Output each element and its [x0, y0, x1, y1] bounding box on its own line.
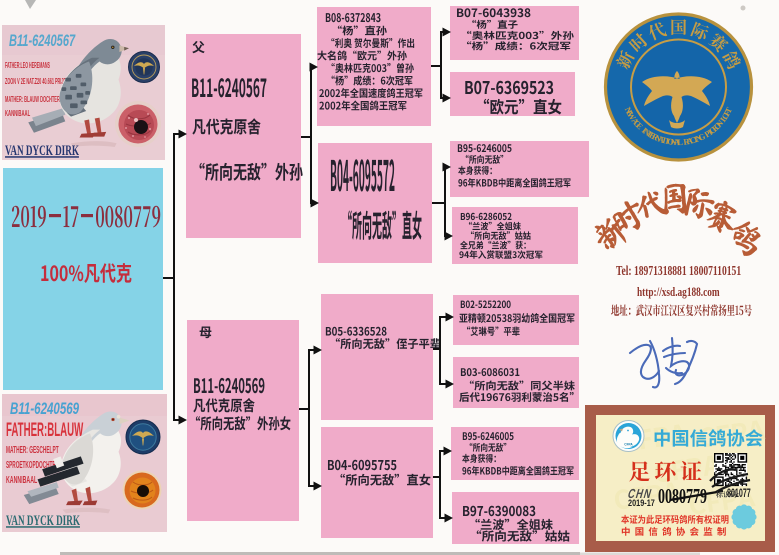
svg-text:KANNIBAAL: KANNIBAAL	[5, 110, 30, 119]
svg-text:ZOON V 2E NAT.Z20 40.661 PRIJS: ZOON V 2E NAT.Z20 40.661 PRIJS	[5, 78, 66, 87]
svg-text:2019-17: 2019-17	[628, 497, 655, 508]
svg-text:http://xsd.ag188.com: http://xsd.ag188.com	[637, 286, 720, 300]
svg-text:Tel: 18971318881 18007110151: Tel: 18971318881 18007110151	[616, 263, 741, 278]
svg-text:MATHER: BLAUW DOCHTER: MATHER: BLAUW DOCHTER	[5, 96, 60, 105]
svg-text:801077: 801077	[727, 487, 751, 500]
svg-text:KANNIBAAL: KANNIBAAL	[6, 473, 37, 486]
svg-text:B11-6240567: B11-6240567	[9, 32, 76, 51]
svg-text:B11-6240569: B11-6240569	[10, 400, 80, 419]
svg-text:VAN DYCK DIRK: VAN DYCK DIRK	[6, 512, 80, 529]
svg-text:MATHER: GESCHELPT: MATHER: GESCHELPT	[6, 444, 59, 456]
svg-text:CFPA: CFPA	[624, 443, 633, 447]
svg-text:FATHER:BLAUW: FATHER:BLAUW	[6, 420, 84, 441]
svg-text:VAN DYCK DIRK: VAN DYCK DIRK	[5, 142, 79, 159]
svg-text:FATHER:LEO HEREMANS: FATHER:LEO HEREMANS	[5, 62, 50, 71]
